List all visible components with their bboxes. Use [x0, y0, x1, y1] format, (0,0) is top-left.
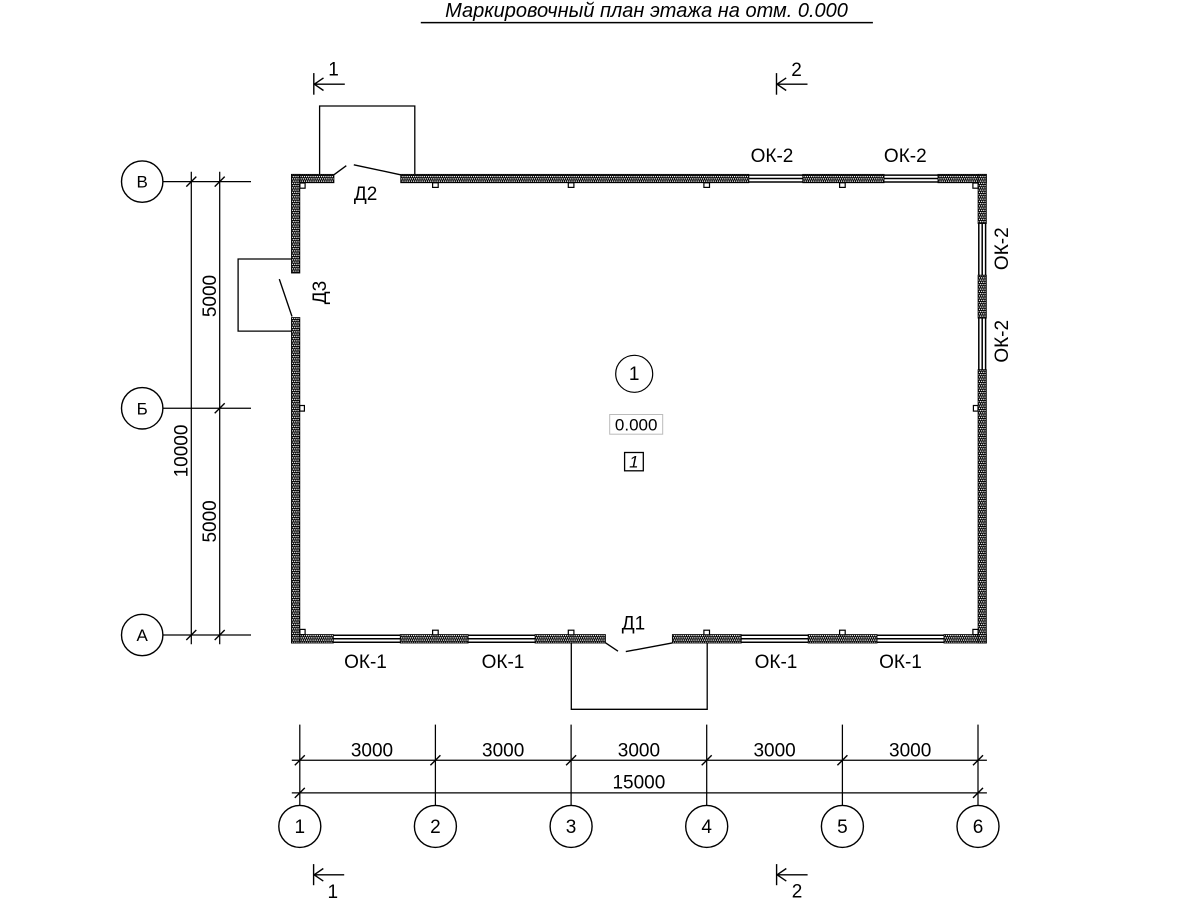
svg-text:1: 1 [629, 364, 640, 385]
svg-text:ОК-2: ОК-2 [992, 227, 1013, 270]
svg-text:Д2: Д2 [354, 184, 377, 205]
svg-text:2: 2 [430, 817, 441, 838]
svg-text:5: 5 [837, 817, 848, 838]
svg-text:2: 2 [792, 882, 803, 900]
svg-text:2: 2 [791, 60, 802, 81]
svg-text:15000: 15000 [612, 773, 665, 794]
svg-text:3000: 3000 [753, 740, 795, 761]
svg-text:3000: 3000 [889, 740, 931, 761]
svg-text:3000: 3000 [351, 740, 393, 761]
svg-text:В: В [137, 173, 148, 192]
svg-text:ОК-1: ОК-1 [344, 652, 387, 673]
svg-text:4: 4 [701, 817, 712, 838]
svg-text:А: А [137, 626, 149, 645]
svg-text:1: 1 [328, 59, 339, 80]
svg-text:Б: Б [137, 399, 148, 418]
svg-text:Маркировочный план этажа на от: Маркировочный план этажа на отм. 0.000 [445, 0, 848, 22]
svg-text:3: 3 [566, 817, 577, 838]
svg-text:10000: 10000 [172, 425, 193, 478]
svg-text:Д1: Д1 [622, 614, 645, 635]
svg-text:5000: 5000 [200, 500, 221, 542]
svg-text:1: 1 [328, 882, 339, 900]
svg-text:ОК-2: ОК-2 [884, 146, 927, 167]
svg-text:5000: 5000 [200, 275, 221, 317]
svg-text:Д3: Д3 [310, 281, 331, 304]
svg-text:ОК-2: ОК-2 [992, 320, 1013, 363]
svg-text:1: 1 [629, 452, 638, 471]
svg-text:ОК-2: ОК-2 [751, 146, 794, 167]
svg-text:ОК-1: ОК-1 [482, 652, 525, 673]
svg-text:3000: 3000 [482, 740, 524, 761]
svg-text:6: 6 [973, 817, 984, 838]
svg-text:0.000: 0.000 [615, 416, 658, 435]
svg-text:1: 1 [295, 817, 306, 838]
svg-text:ОК-1: ОК-1 [755, 652, 798, 673]
svg-text:ОК-1: ОК-1 [879, 652, 922, 673]
svg-text:3000: 3000 [618, 740, 660, 761]
